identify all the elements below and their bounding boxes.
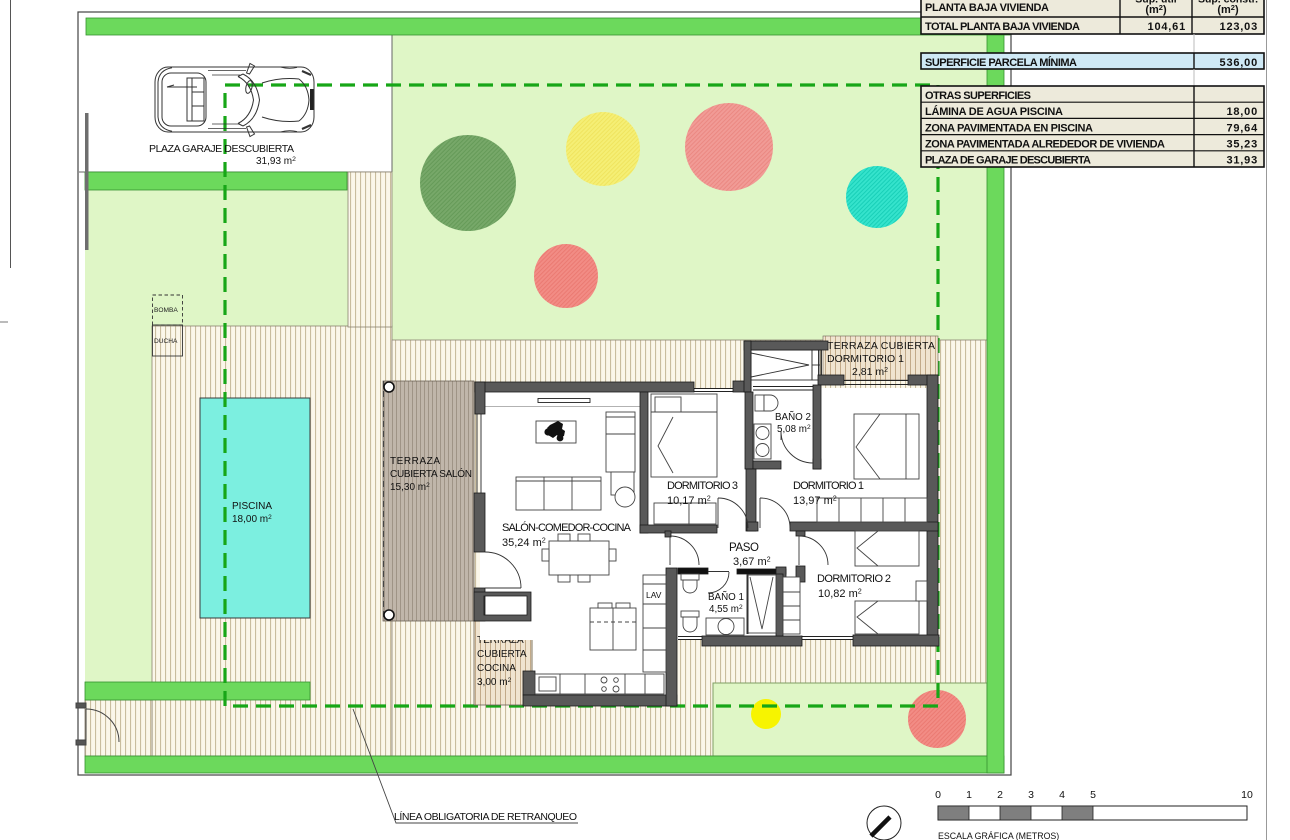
svg-text:31,93 m2: 31,93 m2 xyxy=(256,156,296,167)
svg-text:(m2): (m2) xyxy=(1217,3,1239,16)
svg-text:DORMITORIO 1: DORMITORIO 1 xyxy=(793,480,864,492)
svg-text:2,81 m2: 2,81 m2 xyxy=(852,366,888,378)
svg-text:PASO: PASO xyxy=(729,542,759,554)
svg-text:31,93: 31,93 xyxy=(1226,155,1258,167)
svg-text:ZONA PAVIMENTADA ALREDEDOR DE: ZONA PAVIMENTADA ALREDEDOR DE VIVIENDA xyxy=(925,139,1165,151)
svg-text:DORMITORIO 2: DORMITORIO 2 xyxy=(817,573,891,585)
svg-text:4,55 m2: 4,55 m2 xyxy=(709,604,743,615)
svg-text:35,23: 35,23 xyxy=(1226,139,1258,151)
svg-text:OTRAS SUPERFICIES: OTRAS SUPERFICIES xyxy=(925,90,1031,102)
svg-text:5,08 m2: 5,08 m2 xyxy=(777,424,811,435)
svg-text:123,03: 123,03 xyxy=(1220,21,1258,33)
svg-text:10,82 m2: 10,82 m2 xyxy=(818,587,862,601)
svg-text:35,24 m2: 35,24 m2 xyxy=(502,536,546,550)
svg-text:10,17 m2: 10,17 m2 xyxy=(667,494,711,508)
svg-text:104,61: 104,61 xyxy=(1148,21,1186,33)
svg-text:TOTAL PLANTA BAJA VIVIENDA: TOTAL PLANTA BAJA VIVIENDA xyxy=(925,21,1080,33)
svg-text:15,30 m2: 15,30 m2 xyxy=(390,482,430,493)
svg-text:ZONA PAVIMENTADA EN PISCINA: ZONA PAVIMENTADA EN PISCINA xyxy=(925,123,1093,135)
svg-text:BAÑO 1: BAÑO 1 xyxy=(708,592,744,603)
svg-text:10: 10 xyxy=(1241,789,1253,801)
svg-text:PLAZA GARAJE DESCUBIERTA: PLAZA GARAJE DESCUBIERTA xyxy=(149,143,294,155)
svg-text:3: 3 xyxy=(1028,789,1034,801)
svg-text:3,67 m2: 3,67 m2 xyxy=(733,555,771,569)
svg-text:2: 2 xyxy=(997,789,1003,801)
svg-text:DORMITORIO 3: DORMITORIO 3 xyxy=(667,480,738,492)
svg-text:LAV: LAV xyxy=(646,590,662,600)
svg-text:SUPERFICIE PARCELA MÍNIMA: SUPERFICIE PARCELA MÍNIMA xyxy=(925,56,1077,69)
svg-text:ESCALA GRÁFICA (METROS): ESCALA GRÁFICA (METROS) xyxy=(938,831,1059,840)
svg-text:(m2): (m2) xyxy=(1145,3,1167,16)
svg-text:4: 4 xyxy=(1059,789,1065,801)
svg-text:18,00 m2: 18,00 m2 xyxy=(232,514,272,525)
svg-text:536,00: 536,00 xyxy=(1220,57,1258,69)
svg-text:DUCHA: DUCHA xyxy=(154,338,178,345)
svg-text:SALÓN-COMEDOR-COCINA: SALÓN-COMEDOR-COCINA xyxy=(502,521,632,534)
svg-text:TERRAZA: TERRAZA xyxy=(390,456,440,467)
svg-text:BOMBA: BOMBA xyxy=(154,307,178,314)
svg-text:PISCINA: PISCINA xyxy=(232,501,272,512)
svg-text:LÁMINA DE AGUA PISCINA: LÁMINA DE AGUA PISCINA xyxy=(925,105,1063,118)
svg-text:TERRAZA CUBIERTA: TERRAZA CUBIERTA xyxy=(827,340,935,352)
svg-text:1: 1 xyxy=(966,789,972,801)
svg-text:DORMITORIO 1: DORMITORIO 1 xyxy=(827,353,904,365)
svg-text:PLANTA BAJA VIVIENDA: PLANTA BAJA VIVIENDA xyxy=(925,2,1049,14)
svg-text:CUBIERTA SALÓN: CUBIERTA SALÓN xyxy=(390,467,472,480)
svg-text:BAÑO 2: BAÑO 2 xyxy=(775,412,811,423)
svg-text:PLAZA DE GARAJE DESCUBIERTA: PLAZA DE GARAJE DESCUBIERTA xyxy=(925,155,1091,167)
svg-text:CUBIERTA: CUBIERTA xyxy=(477,649,527,660)
svg-text:LÍNEA OBLIGATORIA DE RETRANQUE: LÍNEA OBLIGATORIA DE RETRANQUEO xyxy=(394,810,577,823)
svg-text:3,00 m2: 3,00 m2 xyxy=(477,677,512,688)
svg-text:0: 0 xyxy=(935,789,941,801)
svg-text:18,00: 18,00 xyxy=(1226,106,1258,118)
svg-text:5: 5 xyxy=(1090,789,1096,801)
svg-text:79,64: 79,64 xyxy=(1226,123,1258,135)
svg-text:COCINA: COCINA xyxy=(477,663,516,674)
svg-text:13,97 m2: 13,97 m2 xyxy=(793,494,837,508)
